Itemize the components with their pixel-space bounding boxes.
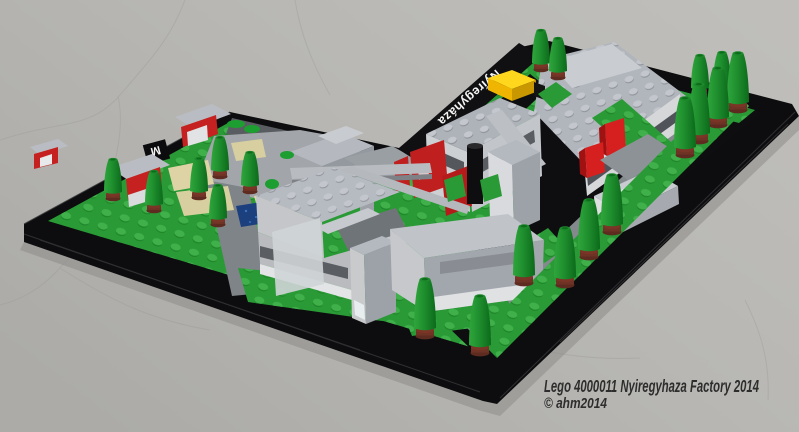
svg-text:Lego 4000011 Nyiregyhaza Facto: Lego 4000011 Nyiregyhaza Factory 2014 [544, 376, 759, 396]
svg-text:© ahm2014: © ahm2014 [544, 395, 608, 412]
